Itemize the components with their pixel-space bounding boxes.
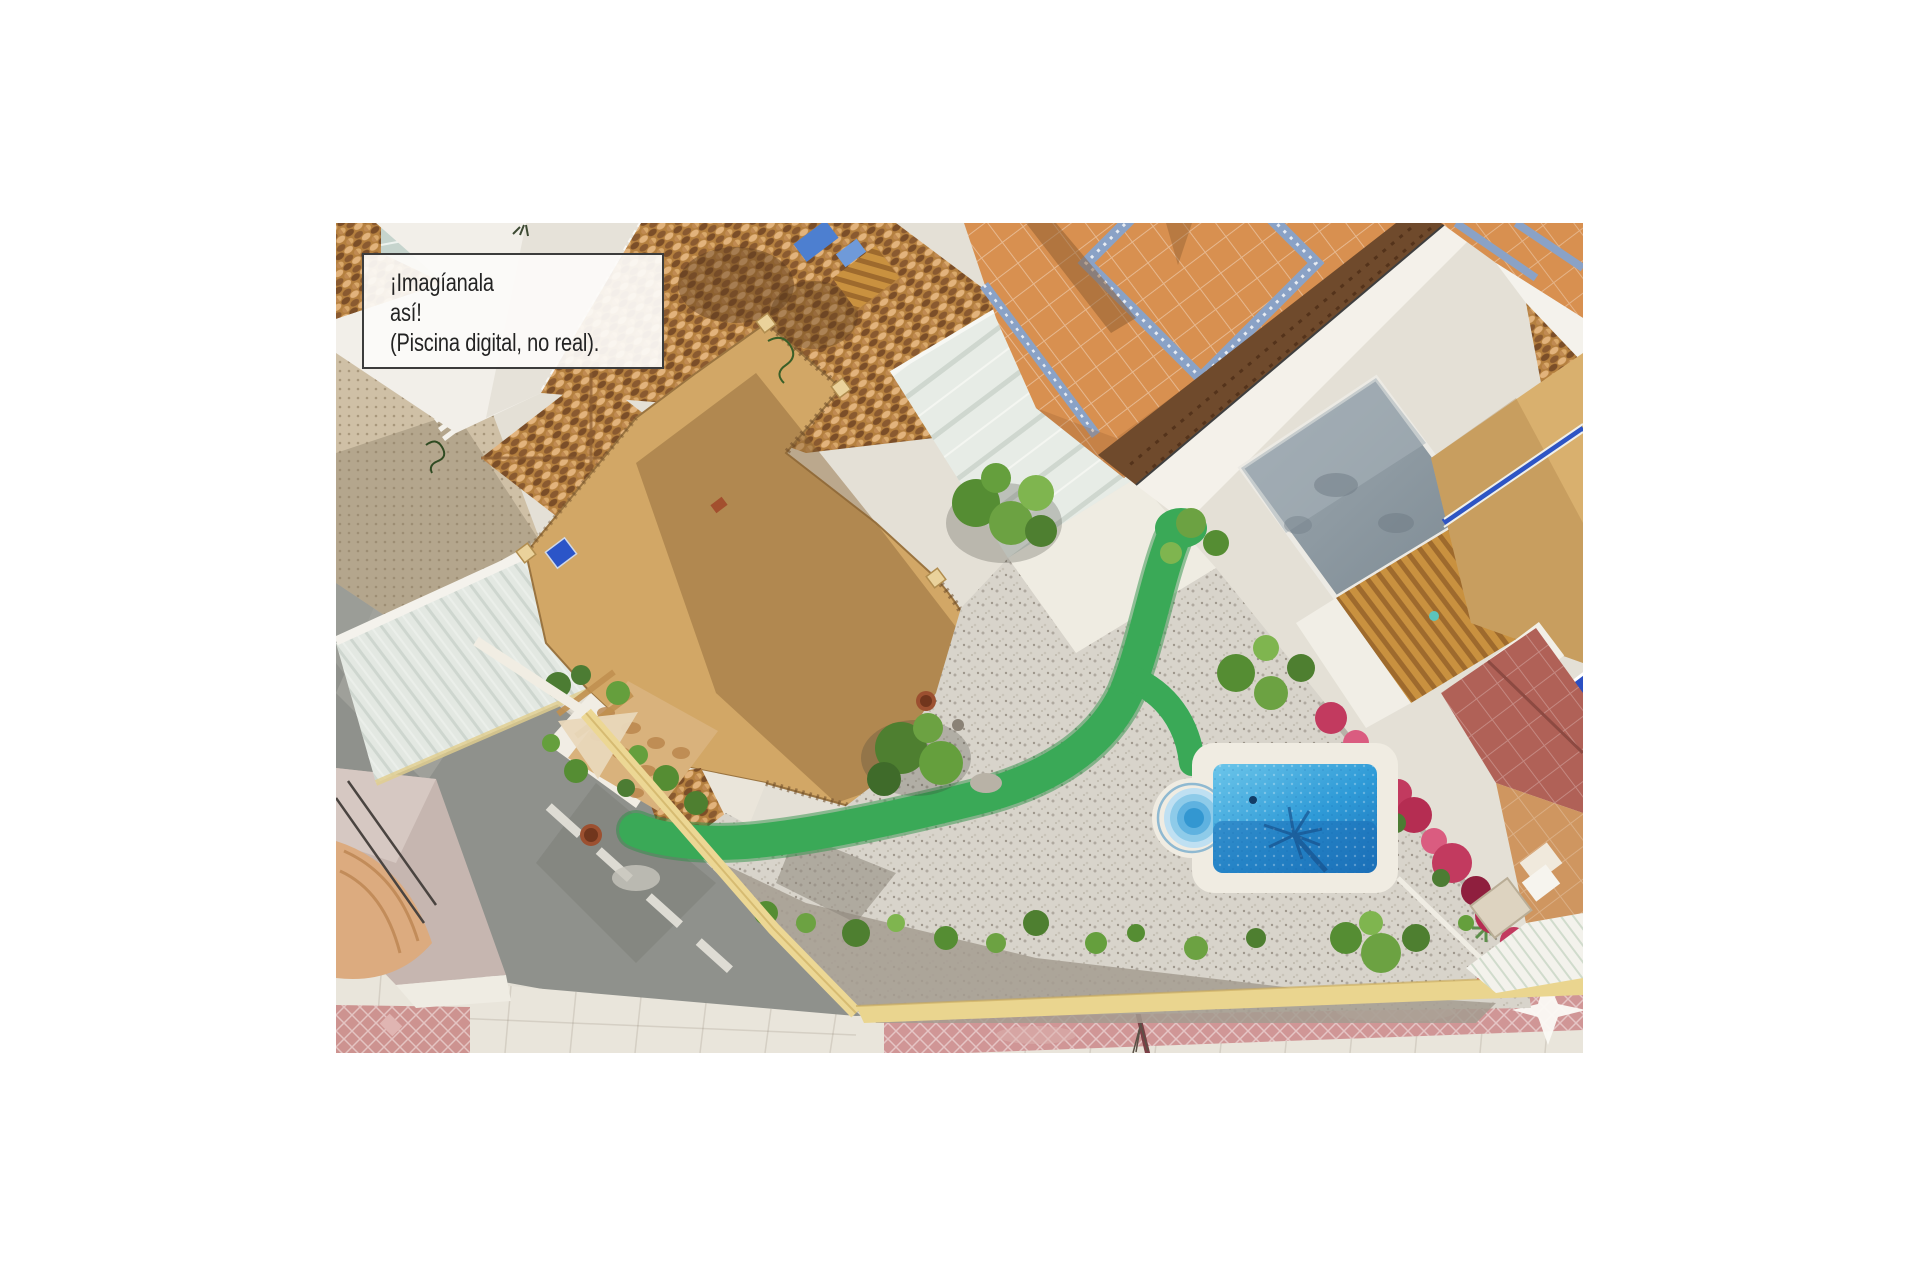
caption-line-1: ¡Imagíanala	[390, 268, 603, 298]
caption-box: ¡Imagíanala así! (Piscina digital, no re…	[362, 253, 664, 369]
caption-line-2: así!	[390, 298, 603, 328]
caption-text: ¡Imagíanala así! (Piscina digital, no re…	[390, 268, 603, 358]
teal-item	[1429, 611, 1439, 621]
sidewalk-red-tiles-left	[336, 1005, 470, 1053]
pool-drain	[1249, 796, 1257, 804]
page: { "caption": { "line1": "¡Imagíanala", "…	[0, 0, 1920, 1280]
aerial-photo: ¡Imagíanala así! (Piscina digital, no re…	[336, 223, 1583, 1053]
pool-water	[1213, 764, 1377, 873]
caption-line-3: (Piscina digital, no real).	[390, 328, 603, 358]
